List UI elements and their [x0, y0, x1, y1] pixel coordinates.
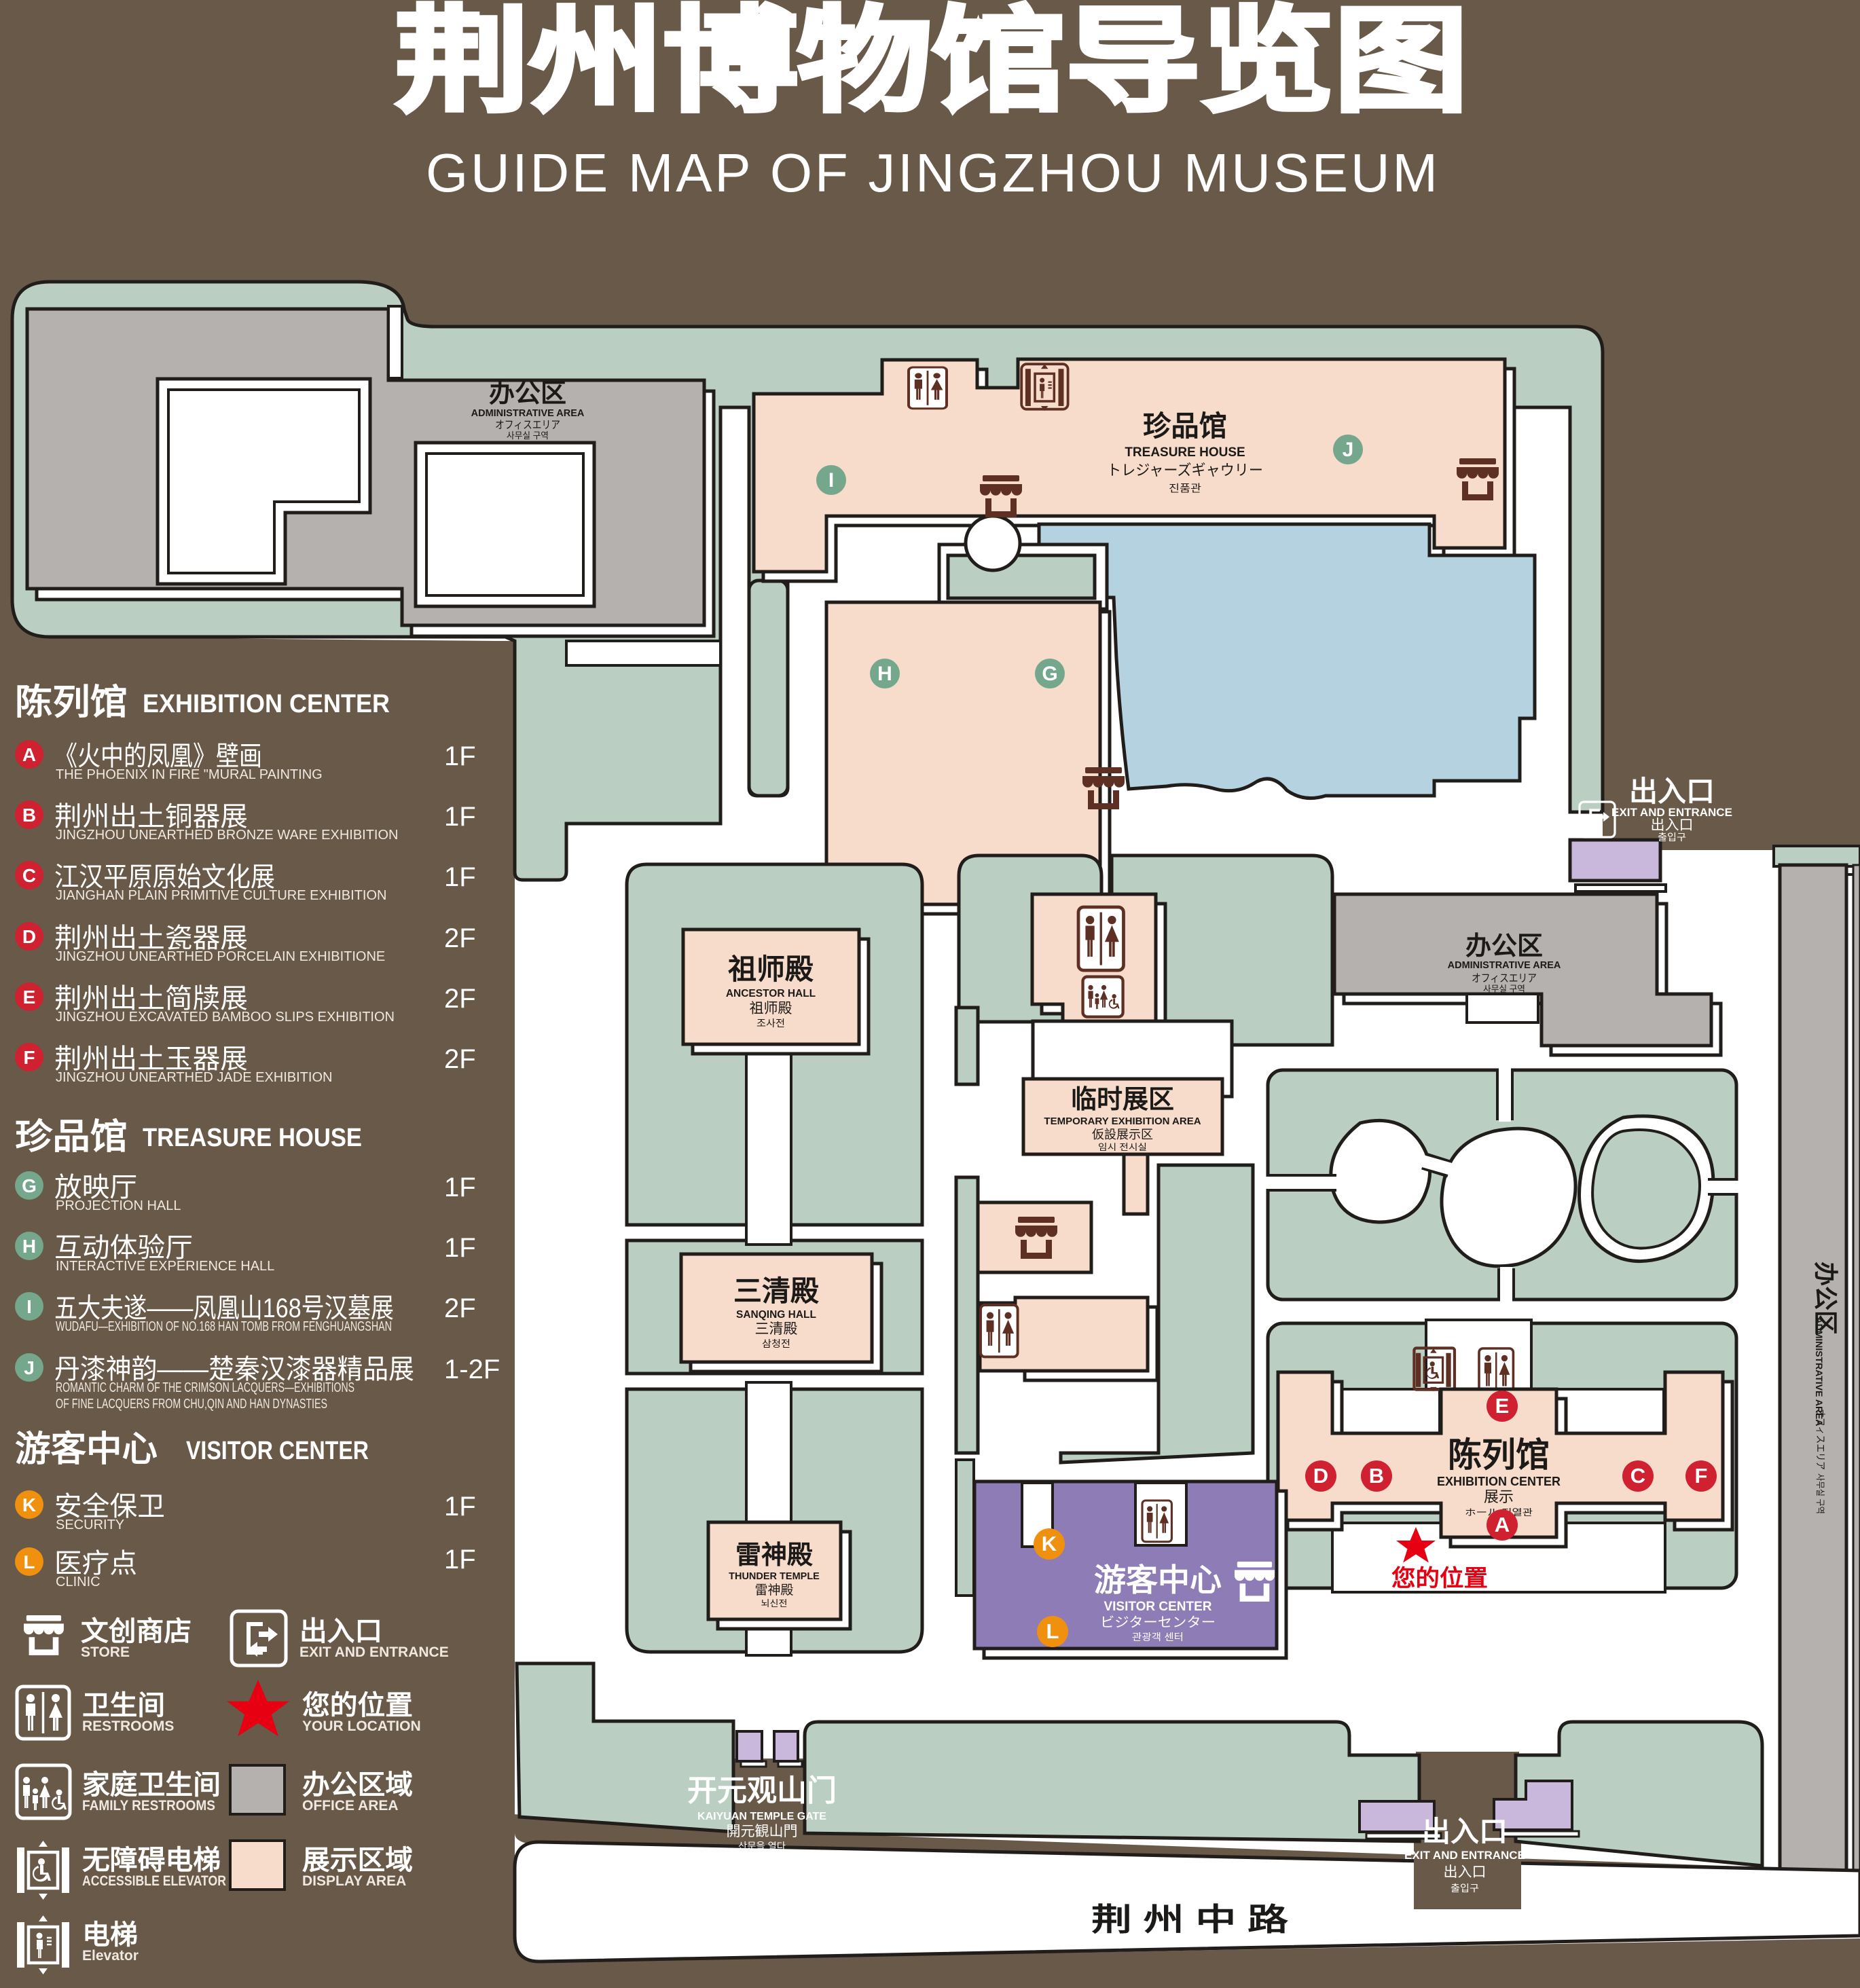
svg-text:F: F: [23, 1047, 35, 1068]
svg-text:电梯: 电梯: [82, 1920, 138, 1950]
svg-text:荆 州 中 路: 荆 州 中 路: [1091, 1902, 1289, 1937]
svg-text:삼청전: 삼청전: [762, 1338, 790, 1349]
svg-text:I: I: [26, 1296, 32, 1317]
svg-text:陈列馆: 陈列馆: [1448, 1436, 1550, 1474]
svg-text:1F: 1F: [444, 1233, 476, 1263]
svg-text:WUDAFU—EXHIBITION OF NO.168 HA: WUDAFU—EXHIBITION OF NO.168 HAN TOMB FRO…: [56, 1319, 392, 1334]
svg-text:オフィスエリア: オフィスエリア: [495, 420, 560, 431]
svg-text:游客中心: 游客中心: [15, 1430, 158, 1469]
svg-text:您的位置: 您的位置: [302, 1691, 413, 1720]
svg-text:사무실 구역: 사무실 구역: [1815, 1473, 1825, 1514]
svg-text:임시 전시실: 임시 전시실: [1098, 1142, 1147, 1152]
svg-text:H: H: [877, 663, 892, 685]
svg-text:Elevator: Elevator: [82, 1948, 139, 1964]
svg-text:VISITOR CENTER: VISITOR CENTER: [1104, 1600, 1211, 1614]
svg-text:雷神殿: 雷神殿: [735, 1541, 813, 1570]
svg-text:GUIDE MAP OF JINGZHOU MUSEUM: GUIDE MAP OF JINGZHOU MUSEUM: [426, 143, 1438, 203]
svg-text:L: L: [23, 1551, 35, 1572]
svg-text:2F: 2F: [444, 984, 476, 1014]
svg-text:사무실 구역: 사무실 구역: [1483, 984, 1525, 994]
svg-text:JINGZHOU UNEARTHED BRONZE WARE: JINGZHOU UNEARTHED BRONZE WARE EXHIBITIO…: [56, 828, 398, 843]
svg-text:开元观山门: 开元观山门: [687, 1774, 837, 1807]
svg-text:1F: 1F: [444, 802, 476, 832]
svg-text:DISPLAY AREA: DISPLAY AREA: [302, 1873, 406, 1889]
svg-text:TREASURE HOUSE: TREASURE HOUSE: [1125, 445, 1245, 460]
svg-text:TEMPORARY EXHIBITION AREA: TEMPORARY EXHIBITION AREA: [1044, 1116, 1201, 1127]
svg-text:三清殿: 三清殿: [733, 1275, 819, 1307]
svg-text:EXHIBITION CENTER: EXHIBITION CENTER: [1437, 1475, 1561, 1488]
svg-text:三清殿: 三清殿: [755, 1321, 798, 1337]
svg-text:CLINIC: CLINIC: [56, 1575, 101, 1589]
svg-text:JIANGHAN PLAIN PRIMITIVE CULTU: JIANGHAN PLAIN PRIMITIVE CULTURE EXHIBIT…: [56, 888, 386, 903]
svg-text:B: B: [1369, 1464, 1384, 1488]
svg-text:临时展区: 临时展区: [1071, 1086, 1174, 1114]
svg-text:オフィスエリア: オフィスエリア: [1815, 1409, 1826, 1470]
svg-text:B: B: [22, 805, 36, 826]
svg-text:1F: 1F: [444, 741, 476, 771]
svg-text:JINGZHOU UNEARTHED JADE EXHIBI: JINGZHOU UNEARTHED JADE EXHIBITION: [56, 1070, 332, 1085]
svg-text:INTERACTIVE EXPERIENCE HALL: INTERACTIVE EXPERIENCE HALL: [56, 1259, 274, 1274]
svg-text:출입구: 출입구: [1451, 1883, 1479, 1894]
svg-text:A: A: [22, 744, 36, 765]
svg-text:陈列馆: 陈列馆: [15, 683, 128, 722]
svg-text:조사전: 조사전: [756, 1018, 785, 1029]
svg-text:H: H: [22, 1236, 36, 1257]
svg-text:办公区: 办公区: [489, 380, 566, 408]
svg-text:J: J: [24, 1357, 35, 1378]
svg-text:办公区域: 办公区域: [302, 1770, 413, 1800]
svg-text:1F: 1F: [444, 1173, 476, 1202]
svg-text:出入口: 出入口: [1651, 817, 1694, 833]
svg-text:无障碍电梯: 无障碍电梯: [82, 1845, 221, 1875]
svg-text:JINGZHOU EXCAVATED BAMBOO SLIP: JINGZHOU EXCAVATED BAMBOO SLIPS EXHIBITI…: [56, 1010, 395, 1025]
svg-text:EXHIBITION CENTER: EXHIBITION CENTER: [143, 690, 390, 718]
svg-text:진품관: 진품관: [1169, 483, 1201, 494]
svg-text:출입구: 출입구: [1658, 832, 1686, 843]
svg-text:JINGZHOU UNEARTHED PORCELAIN E: JINGZHOU UNEARTHED PORCELAIN EXHIBITIONE: [56, 949, 385, 964]
svg-text:1F: 1F: [444, 862, 476, 892]
svg-text:VISITOR CENTER: VISITOR CENTER: [186, 1437, 369, 1465]
svg-text:1-2F: 1-2F: [444, 1355, 500, 1384]
svg-text:游客中心: 游客中心: [1094, 1562, 1222, 1598]
svg-text:SANQING HALL: SANQING HALL: [736, 1309, 816, 1321]
svg-text:OFFICE AREA: OFFICE AREA: [302, 1798, 399, 1814]
svg-text:出入口: 出入口: [1422, 1816, 1508, 1847]
svg-text:出入口: 出入口: [1629, 775, 1715, 807]
svg-text:RESTROOMS: RESTROOMS: [82, 1718, 174, 1734]
svg-text:ACCESSIBLE ELEVATOR: ACCESSIBLE ELEVATOR: [82, 1873, 226, 1889]
svg-text:ADMINISTRATIVE AREA: ADMINISTRATIVE AREA: [471, 408, 585, 419]
svg-text:D: D: [22, 926, 36, 947]
svg-text:EXIT AND ENTRANCE: EXIT AND ENTRANCE: [299, 1644, 449, 1660]
svg-text:STORE: STORE: [81, 1644, 130, 1660]
svg-text:A: A: [1495, 1513, 1510, 1536]
svg-text:珍品馆: 珍品馆: [1143, 410, 1227, 442]
svg-text:C: C: [22, 865, 36, 886]
svg-text:KAIYUAN TEMPLE GATE: KAIYUAN TEMPLE GATE: [697, 1811, 826, 1822]
svg-text:展示区域: 展示区域: [302, 1845, 413, 1875]
svg-text:雷神殿: 雷神殿: [755, 1583, 794, 1598]
svg-text:YOUR LOCATION: YOUR LOCATION: [302, 1718, 421, 1734]
svg-text:文创商店: 文创商店: [81, 1617, 192, 1646]
svg-text:I: I: [828, 469, 834, 492]
svg-text:トレジャーズギャウリー: トレジャーズギャウリー: [1107, 462, 1263, 479]
svg-text:仮設展示区: 仮設展示区: [1092, 1128, 1153, 1141]
svg-text:G: G: [22, 1175, 37, 1196]
svg-text:展示: 展示: [1484, 1488, 1514, 1505]
svg-text:산문을 열다: 산문을 열다: [738, 1841, 786, 1852]
svg-text:出入口: 出入口: [1444, 1864, 1487, 1880]
svg-text:荆州博物馆导览图: 荆州博物馆导览图: [395, 0, 1468, 125]
svg-text:办公区: 办公区: [1465, 932, 1543, 961]
svg-text:E: E: [1495, 1394, 1510, 1418]
svg-text:D: D: [1313, 1464, 1328, 1488]
svg-text:2F: 2F: [444, 1044, 476, 1074]
svg-text:2F: 2F: [444, 923, 476, 953]
svg-text:J: J: [1343, 439, 1354, 461]
svg-text:祖师殿: 祖师殿: [728, 953, 814, 985]
svg-text:您的位置: 您的位置: [1391, 1566, 1488, 1591]
svg-text:K: K: [1042, 1532, 1057, 1556]
svg-text:SECURITY: SECURITY: [56, 1517, 124, 1532]
svg-text:祖师殿: 祖师殿: [750, 1001, 792, 1016]
svg-text:出入口: 出入口: [299, 1617, 382, 1646]
svg-text:家庭卫生间: 家庭卫生间: [82, 1770, 221, 1800]
svg-text:E: E: [23, 987, 36, 1008]
svg-text:뇌신전: 뇌신전: [761, 1598, 788, 1608]
svg-text:ANCESTOR HALL: ANCESTOR HALL: [726, 988, 816, 999]
svg-text:FAMILY RESTROOMS: FAMILY RESTROOMS: [82, 1798, 215, 1814]
svg-text:C: C: [1630, 1464, 1645, 1488]
svg-text:사무실 구역: 사무실 구역: [507, 430, 549, 441]
svg-text:珍品馆: 珍品馆: [15, 1118, 128, 1157]
svg-text:1F: 1F: [444, 1492, 476, 1522]
svg-text:ROMANTIC CHARM OF THE CRIMSON: ROMANTIC CHARM OF THE CRIMSON LACQUERS—E…: [56, 1380, 354, 1395]
svg-text:1F: 1F: [444, 1545, 476, 1575]
svg-text:G: G: [1042, 663, 1057, 685]
svg-text:THUNDER TEMPLE: THUNDER TEMPLE: [729, 1571, 820, 1582]
svg-text:OF FINE LACQUERS FROM CHU,QIN: OF FINE LACQUERS FROM CHU,QIN AND HAN DY…: [56, 1397, 327, 1412]
svg-text:開元観山門: 開元観山門: [727, 1824, 798, 1839]
svg-text:PROJECTION HALL: PROJECTION HALL: [56, 1198, 181, 1213]
svg-text:L: L: [1046, 1619, 1059, 1643]
svg-text:EXIT AND ENTRANCE: EXIT AND ENTRANCE: [1404, 1849, 1525, 1862]
svg-text:K: K: [22, 1494, 36, 1515]
svg-text:TREASURE HOUSE: TREASURE HOUSE: [143, 1124, 362, 1152]
svg-text:卫生间: 卫生间: [82, 1691, 165, 1720]
svg-text:2F: 2F: [444, 1293, 476, 1323]
svg-text:F: F: [1695, 1464, 1708, 1488]
svg-text:オフィスエリア: オフィスエリア: [1472, 973, 1537, 984]
svg-text:관광객 센터: 관광객 센터: [1132, 1632, 1184, 1642]
svg-text:ビジターセンター: ビジターセンター: [1100, 1615, 1216, 1630]
svg-text:ADMINISTRATIVE AREA: ADMINISTRATIVE AREA: [1448, 960, 1561, 971]
svg-text:THE PHOENIX IN FIRE "MURAL PAI: THE PHOENIX IN FIRE "MURAL PAINTING: [56, 767, 323, 782]
